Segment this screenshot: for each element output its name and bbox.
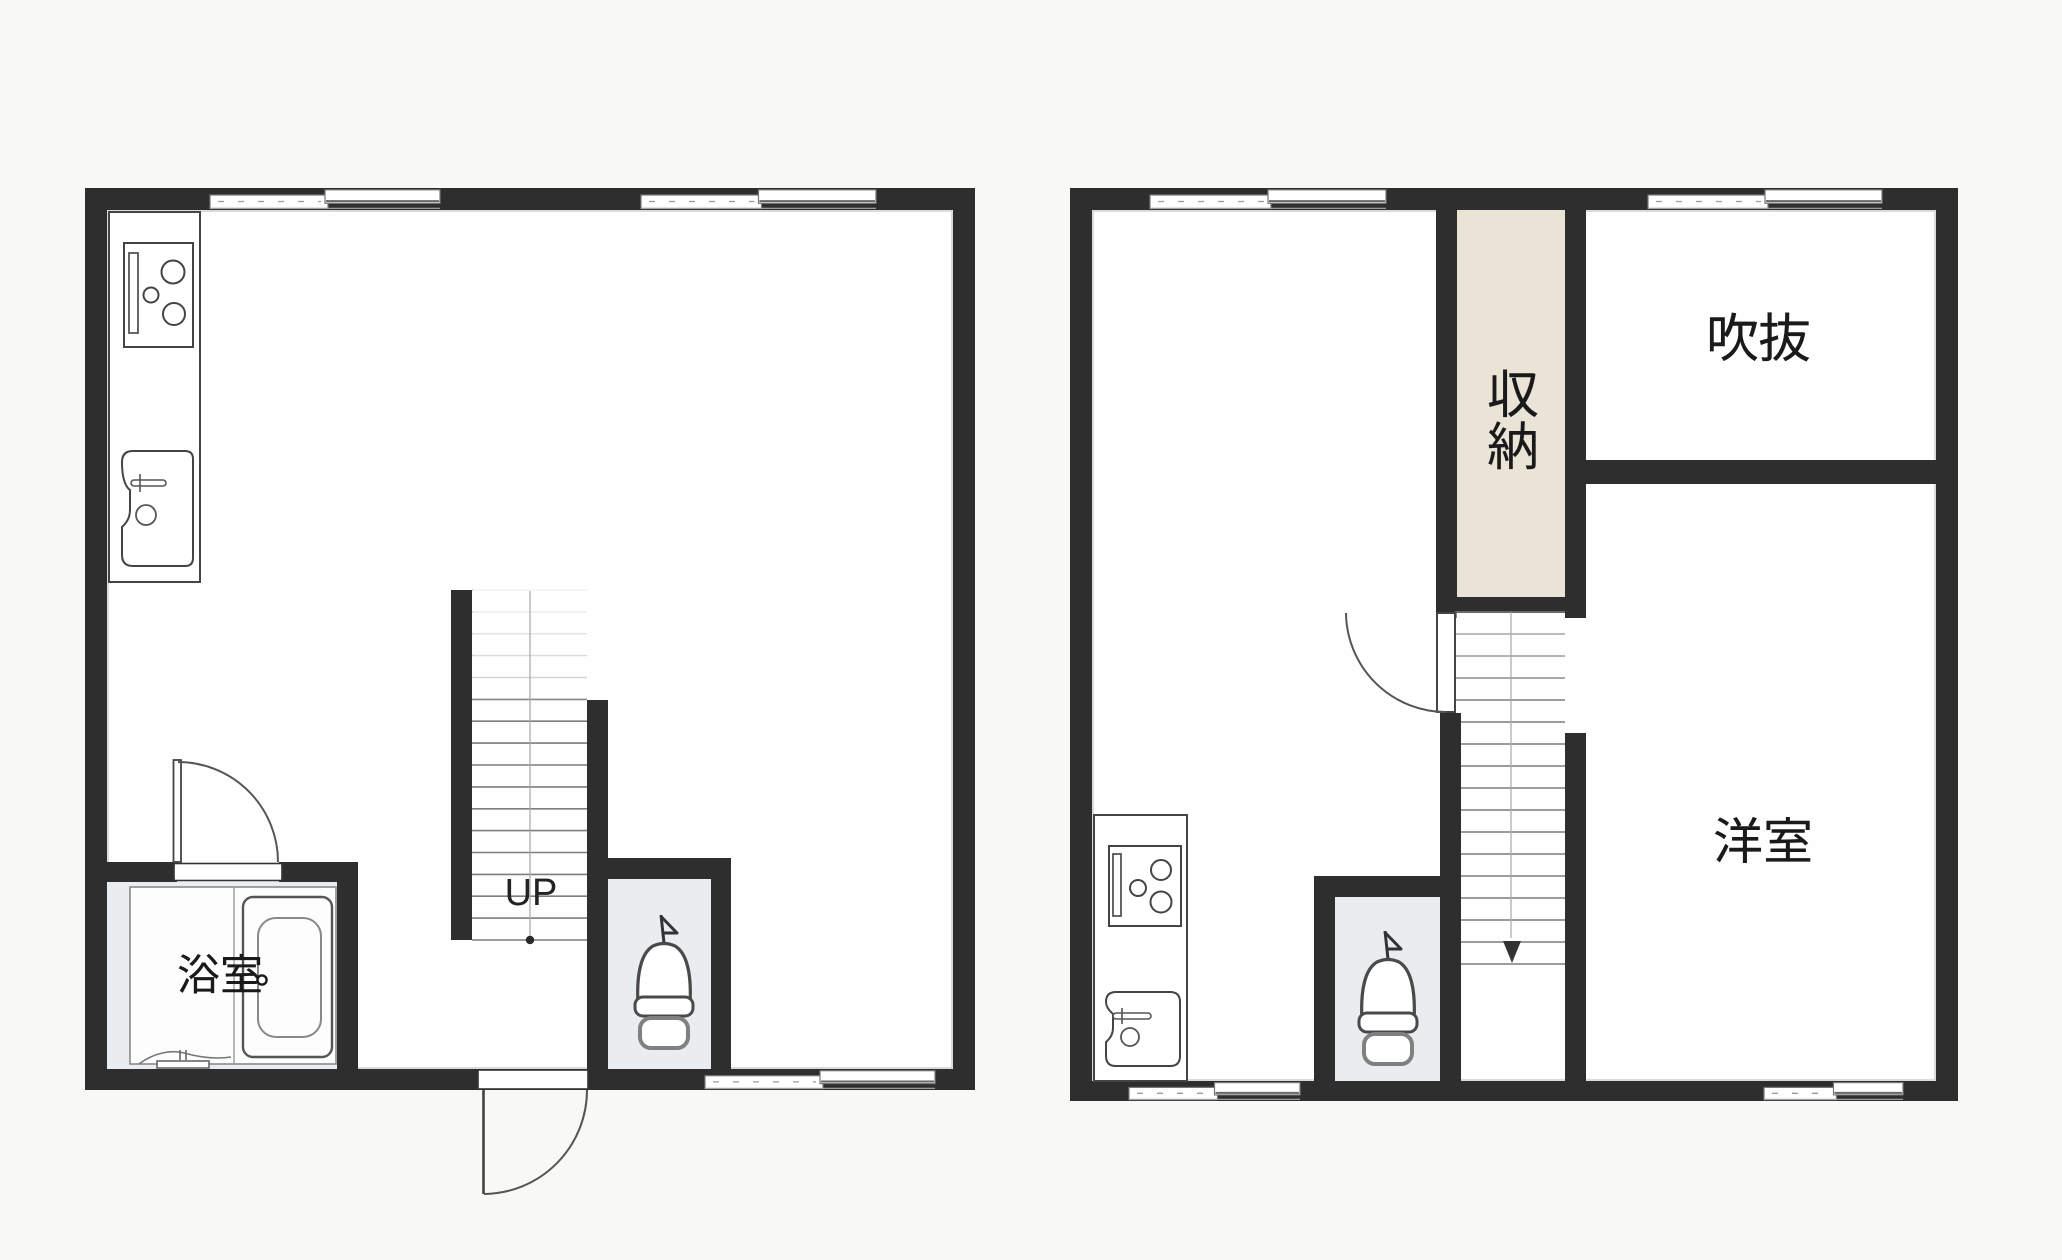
svg-text:UP: UP [505,872,558,914]
